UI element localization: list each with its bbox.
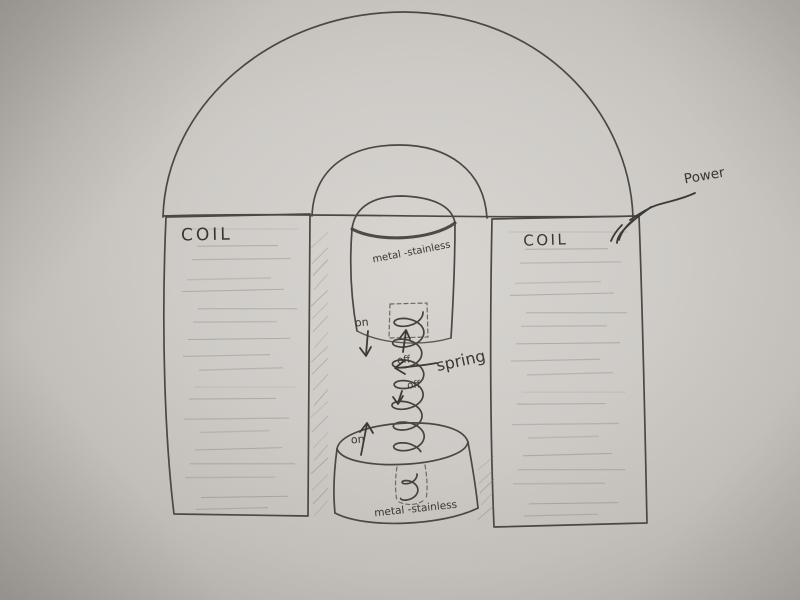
coil-right-label: COIL (523, 230, 569, 250)
off-lower-label: off (407, 379, 422, 391)
paper-photo: COIL COIL metal -stainless metal -stainl… (0, 0, 800, 600)
sketch-svg: COIL COIL metal -stainless metal -stainl… (0, 0, 800, 600)
on-upper-label: on (354, 316, 369, 330)
coil-left-label: COIL (181, 225, 233, 246)
